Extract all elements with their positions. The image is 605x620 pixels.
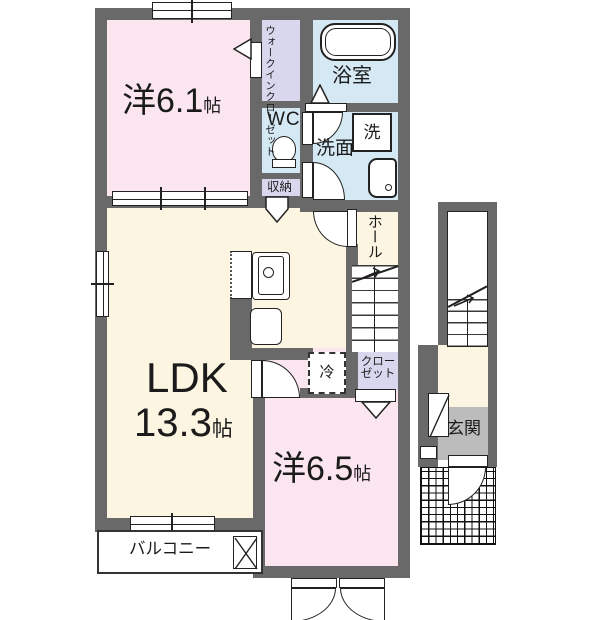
ldk-label: LDK <box>146 356 228 400</box>
window-left-tick <box>91 283 114 285</box>
wic-door-icon <box>233 38 252 60</box>
annex-stairs-arrow-icon <box>452 293 478 309</box>
window-balcony <box>130 516 215 531</box>
closet-door-arrow-icon <box>361 401 391 419</box>
toilet-tank-icon <box>272 159 296 168</box>
entrance-door-threshold <box>448 455 488 467</box>
washbasin-drain-icon <box>385 184 392 191</box>
double-door-leaf-right <box>339 578 385 588</box>
double-door-leaf-left <box>291 578 337 588</box>
washing-machine-label: 洗 <box>364 124 381 142</box>
double-door-swing-left <box>291 588 336 620</box>
kitchen-stove-unit <box>250 308 282 345</box>
storage-label: 収納 <box>267 181 292 194</box>
balcony-drain-box <box>233 536 257 569</box>
annex-wall <box>438 202 447 347</box>
floor-plan: クローゼット 冷 洗 <box>0 0 605 620</box>
wall <box>262 173 300 179</box>
annex-wall <box>488 202 497 467</box>
bathroom-label: 浴室 <box>332 66 372 87</box>
annex-wall-notch <box>420 446 437 459</box>
x-mark-icon <box>234 537 258 570</box>
ldk-size-label: 13.3帖 <box>134 402 233 444</box>
sliding-door-tick <box>160 187 162 210</box>
hall-label: ホール <box>366 214 382 268</box>
shoe-cabinet <box>428 393 449 437</box>
stairs-up-arrow-icon <box>355 266 385 284</box>
wall <box>230 296 252 348</box>
room-western-6-1-label: 洋6.1帖 <box>122 84 221 120</box>
double-door-swing-right <box>340 588 385 620</box>
washroom-door2-leaf <box>302 162 313 198</box>
sliding-door-tick <box>204 187 206 210</box>
bathtub-inner-line <box>325 28 391 56</box>
kitchen-faucet-icon <box>263 267 274 278</box>
entrance-label: 玄関 <box>447 420 481 438</box>
balcony-label: バルコニー <box>129 541 211 558</box>
bathtub <box>320 23 396 61</box>
closet-label: クローゼット <box>358 356 398 380</box>
wall <box>230 348 313 360</box>
walk-in-closet-label: ウォークインクローゼット <box>264 25 275 99</box>
washroom-door-leaf <box>302 112 313 145</box>
washroom-label: 洗面 <box>316 139 354 159</box>
refrigerator-space: 冷 <box>308 352 346 394</box>
wall <box>95 8 410 20</box>
kitchen-counter <box>230 251 252 299</box>
bath-door-threshold <box>305 103 347 112</box>
wall <box>398 8 410 578</box>
window-top-tick <box>191 0 193 23</box>
bath-door-icon <box>310 84 330 104</box>
toilet-label: WC <box>267 110 301 130</box>
hall-door-leaf <box>347 209 357 247</box>
sliding-door-western1-ldk <box>112 191 248 206</box>
wall <box>253 566 410 578</box>
washbasin <box>368 158 397 198</box>
washing-machine-space: 洗 <box>352 113 392 152</box>
refrigerator-label: 冷 <box>319 365 334 381</box>
western2-door-leaf <box>251 360 262 398</box>
room-western-6-5-label: 洋6.5帖 <box>272 452 371 488</box>
storage-door-icon <box>265 196 289 224</box>
